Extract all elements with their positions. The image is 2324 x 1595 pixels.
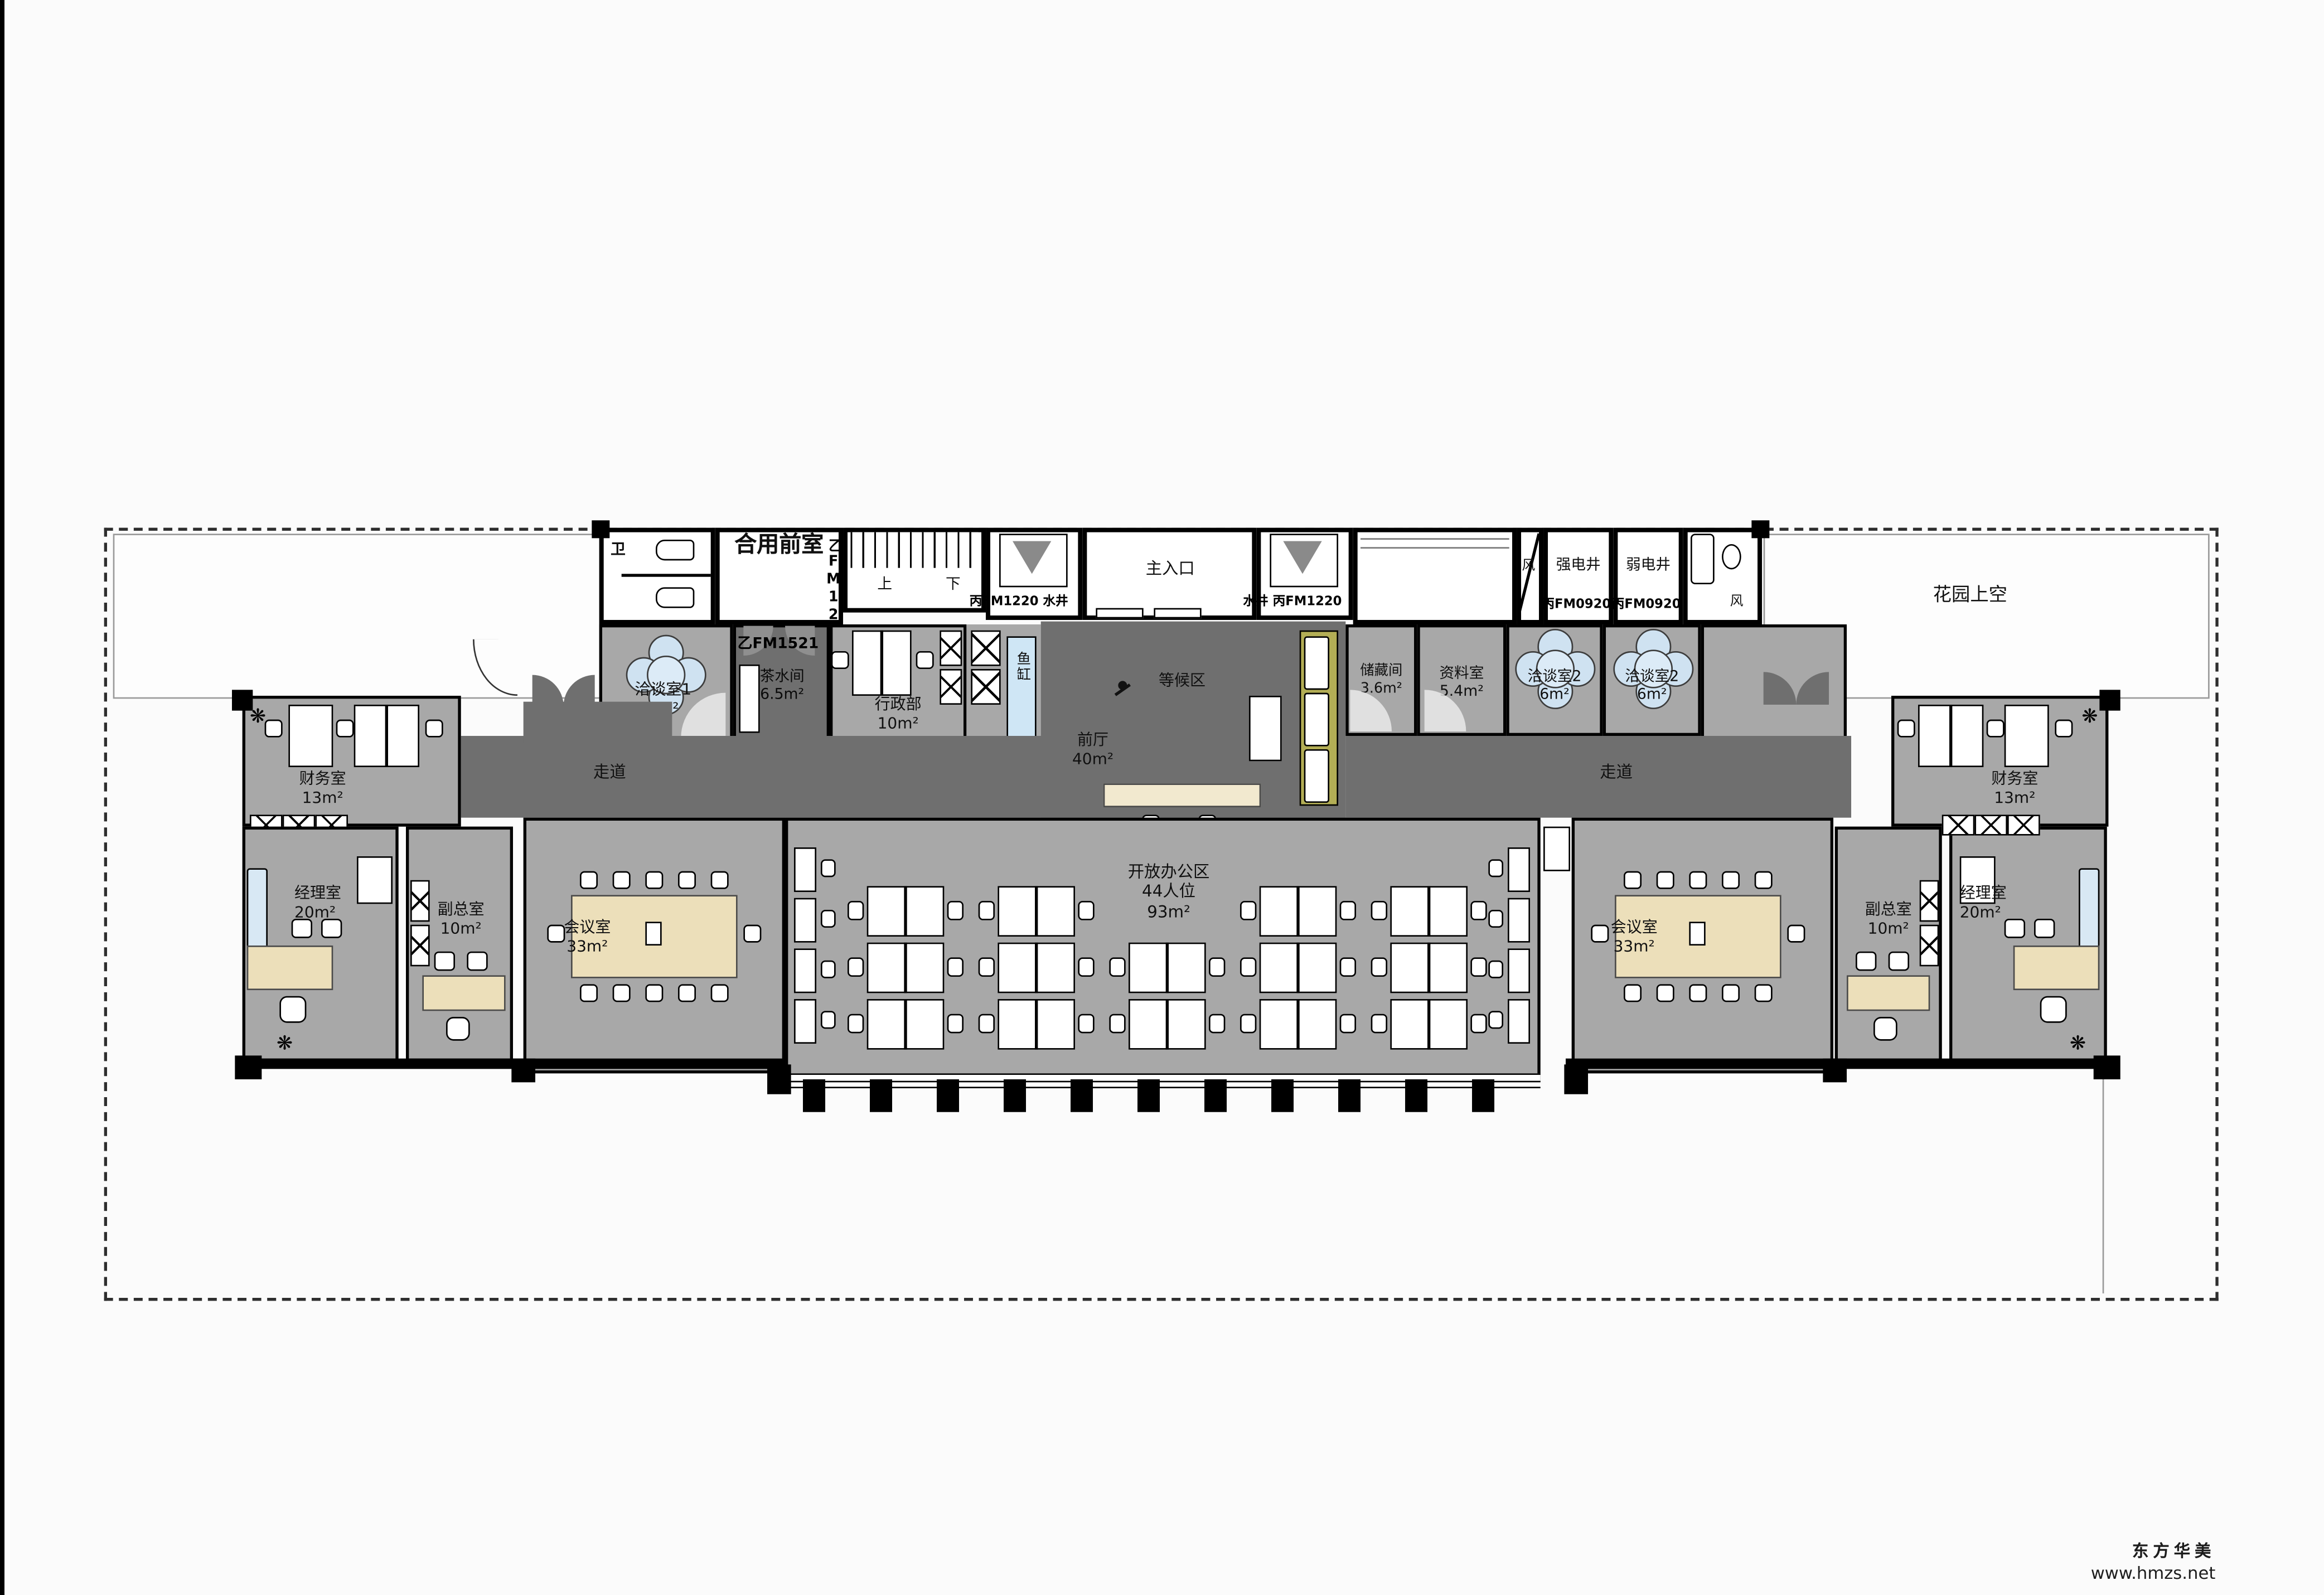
duct-line [1360, 547, 1509, 549]
cabinet [971, 631, 1000, 666]
utility-room [1353, 528, 1517, 624]
vent-label-right: 风 [1722, 595, 1751, 611]
chair [831, 651, 849, 669]
toilet-fixture [656, 540, 694, 560]
finance-left-label: 财务室13m² [270, 770, 375, 808]
negotiation2a-label: 洽谈室26m² [1506, 669, 1602, 705]
desk [2005, 705, 2049, 767]
corridor-west [461, 736, 1044, 818]
curtain-wall [788, 1073, 1540, 1088]
manager-desk [247, 946, 333, 990]
entrance-door-leaf [1096, 608, 1143, 619]
bathtub [1691, 534, 1715, 584]
watermark: 东方华美 www.hmzs.net [1978, 1539, 2216, 1583]
waiting-area-label: 等候区 [1137, 672, 1227, 691]
chair [265, 720, 283, 738]
printer-table [1543, 827, 1570, 871]
fire-door-tag-0920-b: 丙FM0920 [1612, 595, 1681, 613]
desk [288, 705, 333, 767]
fish-tank-label: 鱼缸 [1013, 651, 1030, 682]
deputy-right-label: 副总室10m² [1841, 901, 1936, 939]
cabinet [940, 631, 962, 666]
desk-divider [880, 631, 883, 696]
elevator-triangle-icon [1283, 541, 1321, 574]
manager-desk [2013, 946, 2100, 990]
weak-electric-label: 弱电井 [1613, 557, 1683, 576]
fire-door-tag-1220-left: 丙FM1220 水井 [970, 592, 1068, 609]
table-equipment [1689, 922, 1705, 946]
terrace-left [113, 534, 601, 699]
open-office-label: 开放办公区44人位93m² [1079, 862, 1258, 922]
admin-label: 行政部10m² [836, 696, 961, 734]
stair-treads [850, 532, 978, 568]
cabinet [971, 669, 1000, 705]
waiting-sofa [1300, 631, 1338, 806]
deputy-desk [422, 975, 505, 1011]
watermark-brand: 东方华美 [1978, 1539, 2216, 1563]
toilet-label: 卫 [605, 541, 623, 557]
fire-door-tag-0920-a: 丙FM0920 [1542, 595, 1611, 613]
plant-icon: ❋ [277, 1035, 293, 1054]
main-entrance-label: 主入口 [1112, 559, 1228, 579]
page-edge-line [0, 0, 4, 1595]
pantry-label: 茶水间6.5m² [738, 669, 827, 705]
chair [321, 919, 342, 938]
finance-right-label: 财务室13m² [1963, 770, 2067, 808]
executive-chair [2040, 996, 2067, 1023]
coffee-table [1249, 696, 1282, 761]
reception-counter [1103, 783, 1261, 807]
chair [336, 720, 354, 738]
deputy-desk [1847, 975, 1930, 1011]
elevator-triangle-icon [1013, 541, 1051, 574]
desk-divider [1949, 705, 1952, 767]
entrance-door-leaf [1154, 608, 1201, 619]
executive-chair [1873, 1017, 1897, 1041]
chair [916, 651, 934, 669]
corridor-west-entry [524, 702, 672, 744]
negotiation2b-label: 洽谈室26m² [1603, 669, 1701, 705]
shared-vestibule-label: 合用前室 [720, 531, 839, 558]
watermark-url: www.hmzs.net [1978, 1563, 2216, 1583]
lobby-label: 前厅40m² [1048, 731, 1137, 769]
deputy-left-label: 副总室10m² [413, 901, 509, 939]
floor-plan: 花园上空 卫 合用前室 乙FM1221 上 下 主入口 丙FM1220 水井 水… [0, 0, 2324, 1595]
toilet-fixture [656, 587, 694, 608]
strong-electric-label: 强电井 [1543, 557, 1613, 576]
garden-label: 花园上空 [1858, 583, 2081, 605]
plant-icon: ❋ [2070, 1035, 2086, 1054]
stair-down-label: 下 [943, 577, 964, 595]
sofa [2079, 868, 2099, 957]
plant-icon: ❋ [2081, 707, 2098, 727]
stair-up-label: 上 [874, 577, 895, 595]
chair [434, 952, 455, 971]
corridor-east-label: 走道 [1579, 763, 1653, 783]
toilet-stall-divider [622, 574, 711, 576]
duct-line [1360, 538, 1509, 540]
vent-label-left: 风 [1514, 559, 1543, 575]
manager-left-label: 经理室20m² [294, 885, 399, 923]
chair [292, 919, 312, 938]
sofa [247, 868, 268, 957]
executive-chair [279, 996, 306, 1023]
basin [1722, 544, 1741, 569]
desk-divider [385, 705, 388, 767]
executive-chair [446, 1017, 470, 1041]
chair [467, 952, 487, 971]
corridor-west-label: 走道 [573, 763, 647, 783]
fire-door-tag-1220-right: 水井 丙FM1220 [1243, 592, 1342, 609]
manager-right-label: 经理室20m² [1960, 885, 2064, 923]
table-equipment [645, 922, 661, 946]
chair [425, 720, 443, 738]
fire-door-tag-1521: 乙FM1521 [738, 631, 819, 653]
